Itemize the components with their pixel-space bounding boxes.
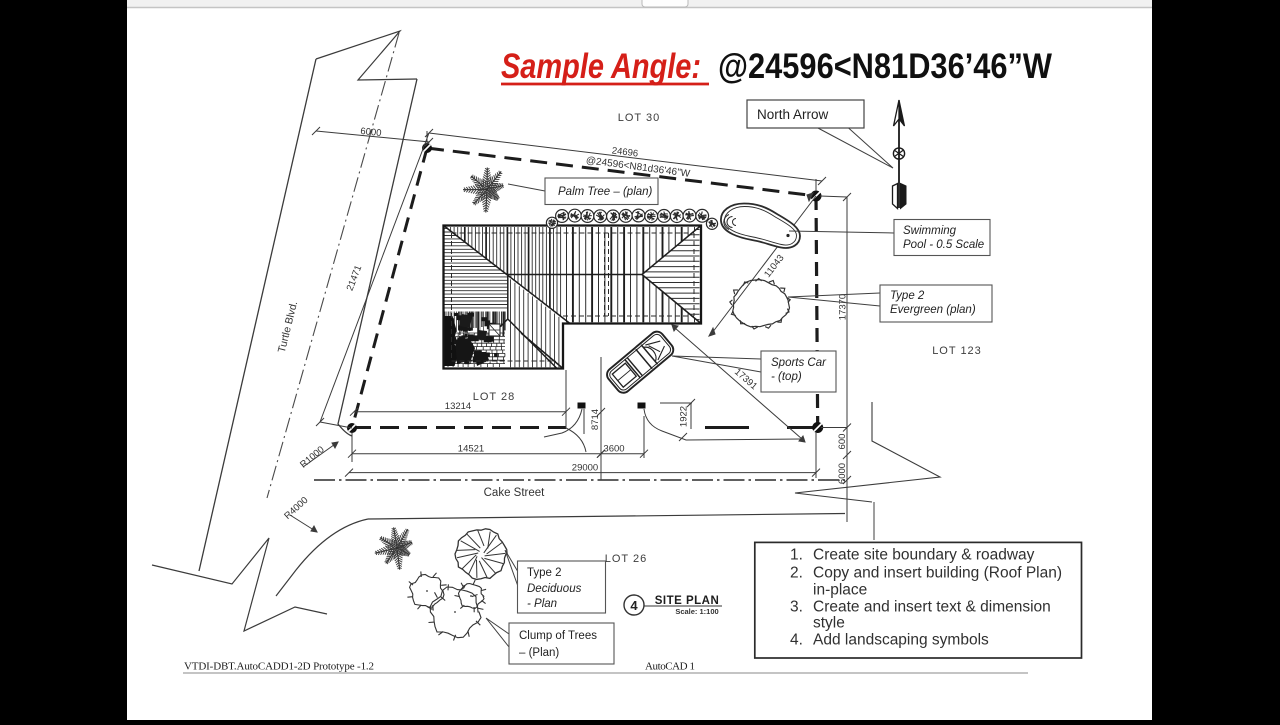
svg-text:8714: 8714 bbox=[590, 409, 601, 430]
svg-text:LOT 26: LOT 26 bbox=[605, 553, 648, 565]
svg-text:Type 2: Type 2 bbox=[527, 567, 562, 579]
svg-text:1.: 1. bbox=[790, 547, 803, 564]
svg-text:Sports Car: Sports Car bbox=[771, 357, 827, 369]
svg-text:Evergreen (plan): Evergreen (plan) bbox=[890, 304, 976, 316]
svg-text:Cake Street: Cake Street bbox=[484, 487, 546, 499]
svg-text:Create site boundary & roadway: Create site boundary & roadway bbox=[813, 547, 1035, 564]
svg-text:4: 4 bbox=[630, 598, 638, 613]
svg-text:- (top): - (top) bbox=[771, 371, 802, 383]
svg-text:6000: 6000 bbox=[837, 463, 848, 484]
svg-text:3600: 3600 bbox=[603, 444, 624, 455]
svg-text:VTDI-DBT.AutoCADD1-2D Prototyp: VTDI-DBT.AutoCADD1-2D Prototype -1.2 bbox=[184, 661, 374, 673]
svg-text:Swimming: Swimming bbox=[903, 225, 957, 237]
svg-text:Scale: 1:100: Scale: 1:100 bbox=[675, 607, 718, 616]
svg-text:14521: 14521 bbox=[458, 444, 484, 455]
svg-text:Clump of Trees: Clump of Trees bbox=[519, 630, 597, 642]
svg-text:Palm Tree – (plan): Palm Tree – (plan) bbox=[558, 186, 653, 198]
svg-text:3.: 3. bbox=[790, 599, 803, 616]
svg-text:Deciduous: Deciduous bbox=[527, 583, 582, 595]
svg-text:North Arrow: North Arrow bbox=[757, 107, 829, 122]
svg-text:29000: 29000 bbox=[572, 463, 598, 474]
svg-text:in-place: in-place bbox=[813, 582, 867, 599]
svg-text:LOT 123: LOT 123 bbox=[932, 345, 982, 357]
svg-text:@24596<N81D36’46”W: @24596<N81D36’46”W bbox=[718, 47, 1052, 86]
svg-text:1922: 1922 bbox=[679, 406, 690, 427]
svg-text:17370: 17370 bbox=[838, 294, 849, 320]
svg-text:– (Plan): – (Plan) bbox=[519, 647, 559, 659]
svg-text:style: style bbox=[813, 615, 845, 632]
svg-text:AutoCAD 1: AutoCAD 1 bbox=[645, 661, 695, 673]
svg-text:- Plan: - Plan bbox=[527, 598, 557, 610]
svg-text:4.: 4. bbox=[790, 632, 803, 649]
svg-text:13214: 13214 bbox=[445, 401, 471, 412]
svg-text:Pool - 0.5 Scale: Pool - 0.5 Scale bbox=[903, 239, 984, 251]
svg-text:Add landscaping symbols: Add landscaping symbols bbox=[813, 632, 989, 649]
svg-text:Sample Angle:: Sample Angle: bbox=[501, 47, 701, 86]
svg-text:SITE PLAN: SITE PLAN bbox=[655, 595, 720, 607]
svg-text:Create and insert text & dimen: Create and insert text & dimension bbox=[813, 599, 1051, 616]
svg-text:LOT 30: LOT 30 bbox=[618, 112, 661, 124]
svg-text:Copy and insert building (Roof: Copy and insert building (Roof Plan) bbox=[813, 565, 1062, 582]
svg-text:Type 2: Type 2 bbox=[890, 290, 925, 302]
svg-text:2.: 2. bbox=[790, 565, 803, 582]
svg-text:600: 600 bbox=[837, 434, 848, 450]
svg-text:6000: 6000 bbox=[360, 126, 382, 139]
svg-text:LOT 28: LOT 28 bbox=[473, 391, 516, 403]
